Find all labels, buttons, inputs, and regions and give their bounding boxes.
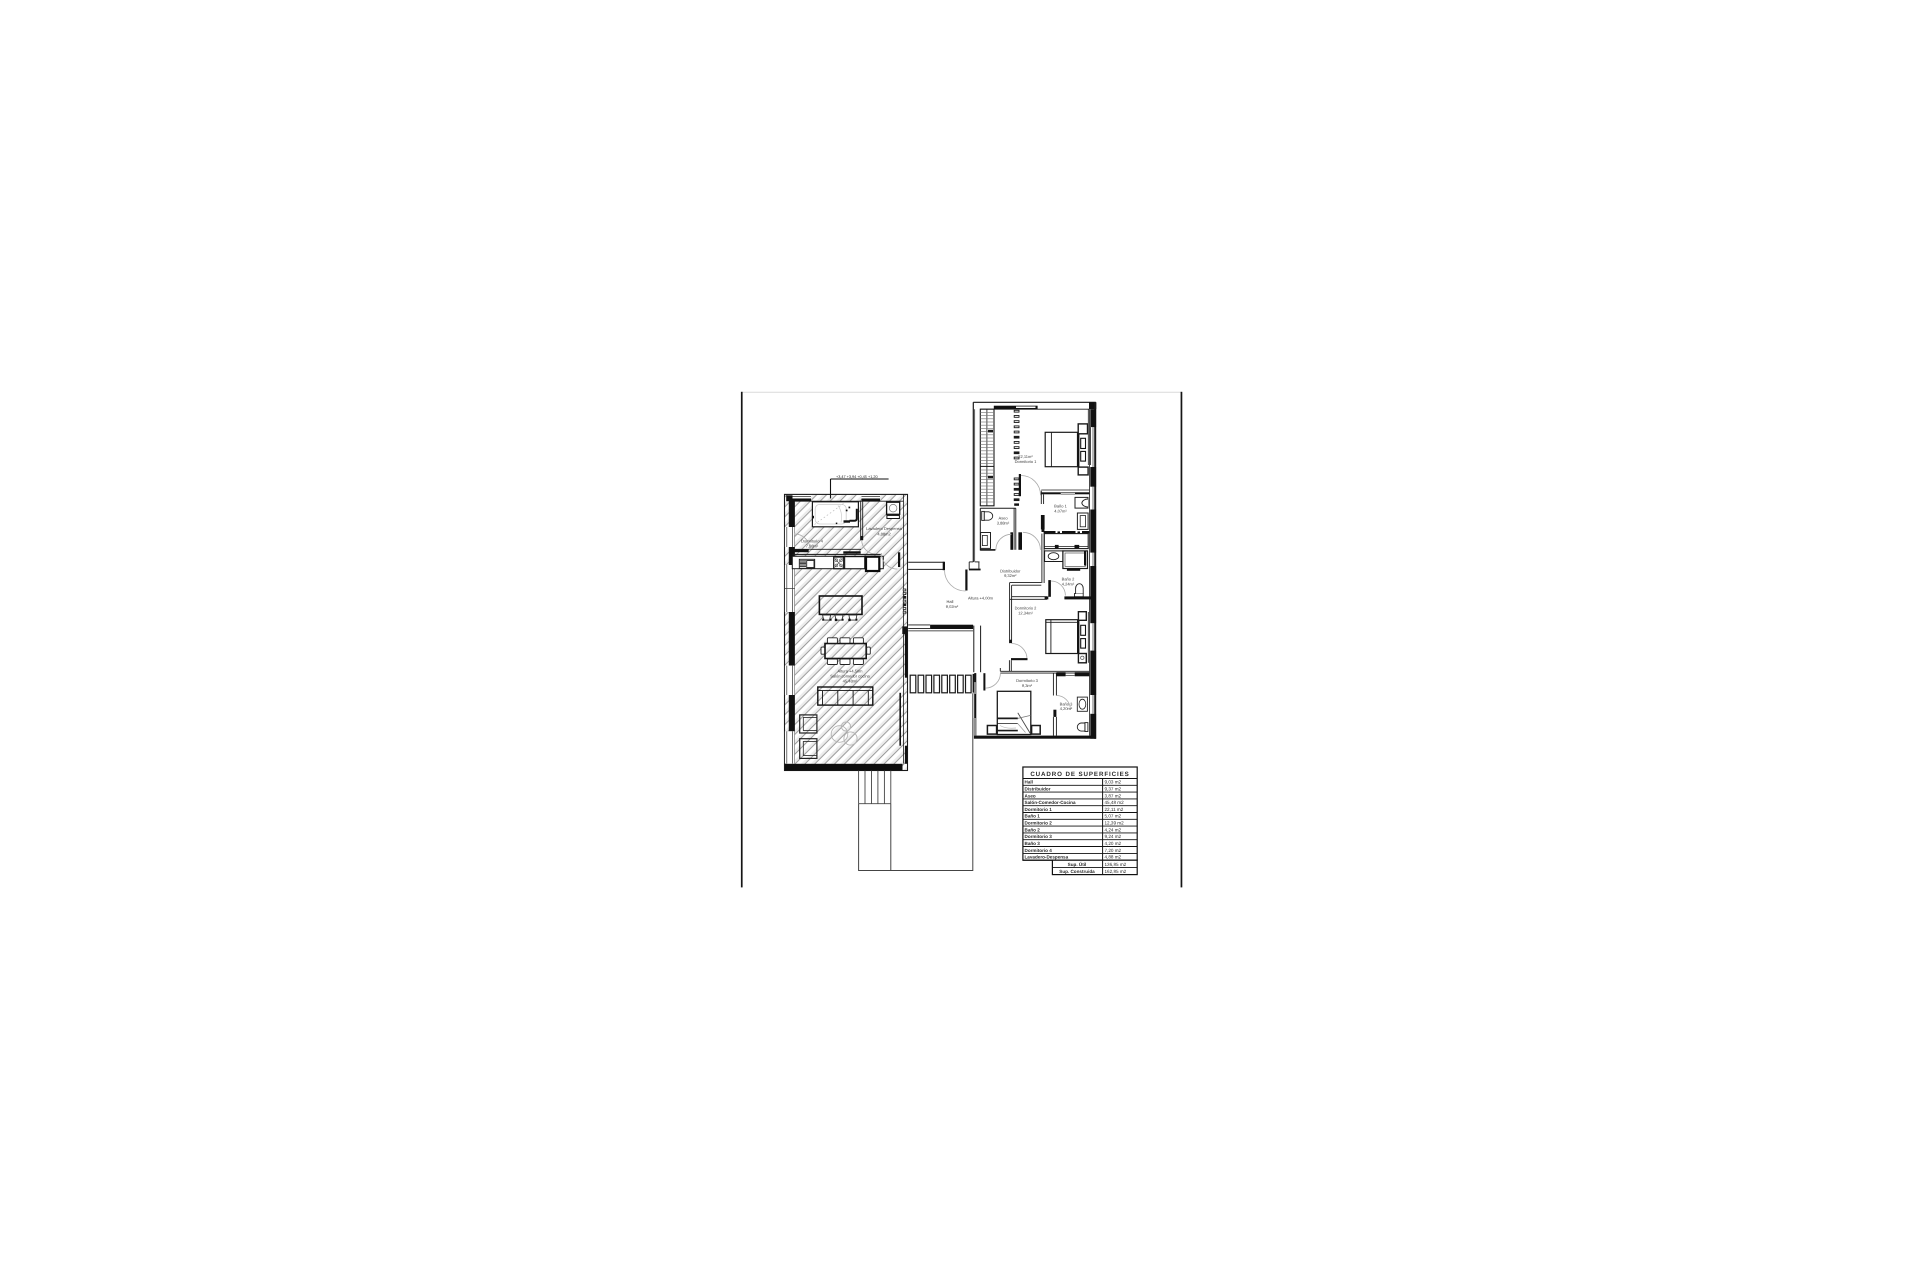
svg-text:9,24 m2: 9,24 m2	[1105, 834, 1122, 839]
svg-text:Salón-Comedor-Cocina: Salón-Comedor-Cocina	[1025, 800, 1076, 805]
svg-text:136,85 m2: 136,85 m2	[1105, 862, 1127, 867]
svg-text:9,03 m2: 9,03 m2	[1105, 780, 1122, 785]
svg-text:4,20m²: 4,20m²	[1060, 706, 1073, 711]
svg-text:4,20 m2: 4,20 m2	[1105, 841, 1122, 846]
svg-text:4,24 m2: 4,24 m2	[1105, 827, 1122, 832]
svg-text:12,34m²: 12,34m²	[1018, 610, 1033, 615]
svg-text:9,02m²: 9,02m²	[946, 604, 959, 609]
svg-text:9,3m²: 9,3m²	[1022, 683, 1033, 688]
svg-text:7,20 m2: 7,20 m2	[1105, 848, 1122, 853]
svg-text:Lavadero Despensa: Lavadero Despensa	[866, 526, 903, 531]
svg-text:Distribuidor: Distribuidor	[1025, 787, 1051, 792]
svg-text:4,88m2: 4,88m2	[877, 531, 891, 536]
svg-text:7,38m²: 7,38m²	[806, 544, 819, 549]
svg-text:Altura +4,00m: Altura +4,00m	[968, 596, 994, 601]
svg-text:Lavadero-Despensa: Lavadero-Despensa	[1025, 855, 1069, 860]
svg-text:Dormitorio 4: Dormitorio 4	[801, 538, 824, 543]
svg-text:22,11 m2: 22,11 m2	[1105, 807, 1124, 812]
svg-text:Baño 3: Baño 3	[1025, 841, 1041, 846]
svg-text:Dormitorio 1: Dormitorio 1	[1015, 459, 1038, 464]
svg-text:Baño 2: Baño 2	[1025, 827, 1041, 832]
svg-text:Dormitorio 2: Dormitorio 2	[1025, 821, 1053, 826]
svg-text:4,07m²: 4,07m²	[1054, 508, 1067, 513]
svg-text:4,24m²: 4,24m²	[1062, 581, 1075, 586]
svg-text:162,85 m2: 162,85 m2	[1105, 869, 1127, 874]
svg-text:45,48 m2: 45,48 m2	[1105, 800, 1125, 805]
svg-text:45,48m²: 45,48m²	[843, 678, 858, 683]
svg-text:9,37 m2: 9,37 m2	[1105, 787, 1122, 792]
svg-text:Dormitorio 1: Dormitorio 1	[1025, 807, 1053, 812]
svg-text:4,88 m2: 4,88 m2	[1105, 855, 1122, 860]
svg-text:5,07 m2: 5,07 m2	[1105, 814, 1122, 819]
svg-text:3,87 m2: 3,87 m2	[1105, 793, 1122, 798]
svg-text:Dormitorio 4: Dormitorio 4	[1025, 848, 1053, 853]
svg-text:12,39 m2: 12,39 m2	[1105, 821, 1125, 826]
svg-text:+3,47 +3,94 +0,45 +1,20: +3,47 +3,94 +0,45 +1,20	[836, 475, 878, 479]
svg-text:CUADRO DE SUPERFICIES: CUADRO DE SUPERFICIES	[1030, 771, 1129, 778]
svg-text:3,88m²: 3,88m²	[997, 520, 1010, 525]
svg-text:Dormitorio 3: Dormitorio 3	[1025, 834, 1053, 839]
svg-text:9,32m²: 9,32m²	[1004, 573, 1017, 578]
svg-text:Hall: Hall	[1025, 780, 1033, 785]
svg-text:Aseo: Aseo	[1025, 793, 1036, 798]
svg-text:Sup. Útil: Sup. Útil	[1068, 861, 1087, 867]
svg-text:Baño 1: Baño 1	[1025, 814, 1041, 819]
svg-text:Sup. Construida: Sup. Construida	[1059, 869, 1095, 874]
